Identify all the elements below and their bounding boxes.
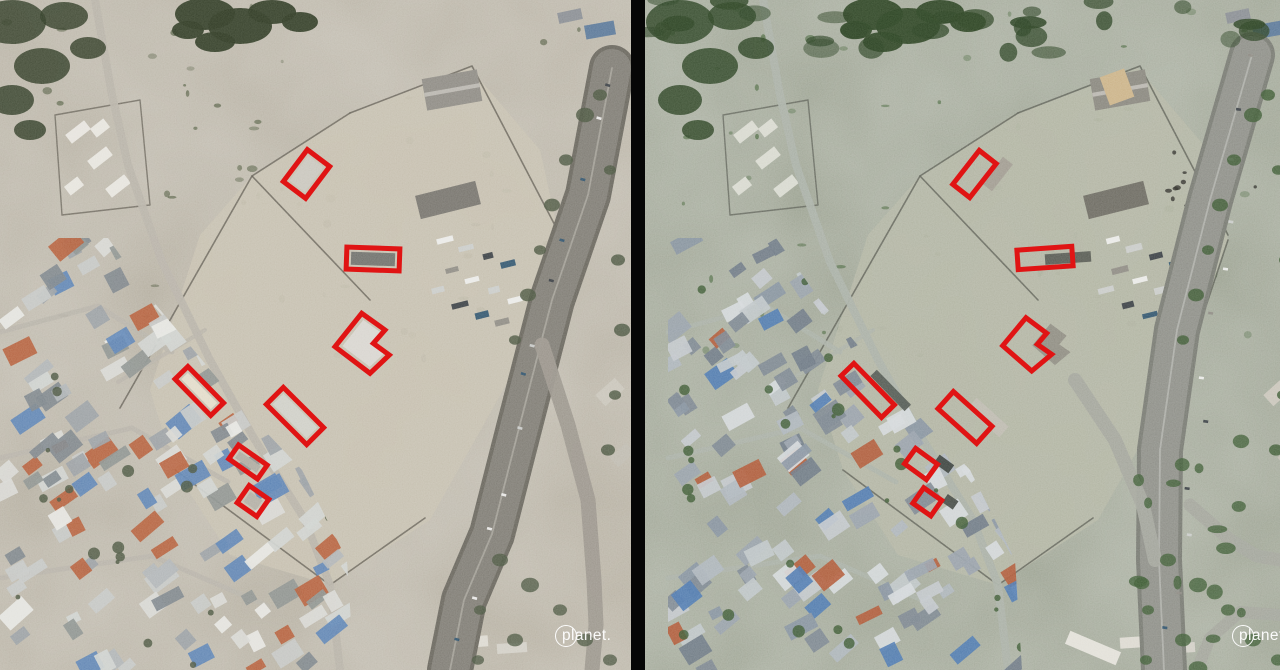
panel-divider <box>631 0 645 670</box>
satellite-panel-before: planet. <box>0 0 631 670</box>
annotation-box <box>229 445 267 479</box>
satellite-panel-after: planet. <box>645 0 1280 670</box>
annotation-overlay-before <box>0 0 631 670</box>
annotation-box <box>266 387 323 444</box>
annotation-box <box>346 247 400 271</box>
annotation-box <box>953 150 996 197</box>
annotation-box <box>283 150 329 199</box>
annotation-box <box>913 488 942 516</box>
annotation-box <box>1003 318 1052 371</box>
annotation-overlay-after <box>645 0 1280 670</box>
annotation-box <box>841 363 894 417</box>
planet-logo-text: planet. <box>1239 627 1280 645</box>
annotation-box <box>335 313 389 373</box>
annotation-box <box>1017 246 1073 269</box>
planet-logo-text: planet. <box>562 627 611 645</box>
annotation-box <box>904 448 937 479</box>
satellite-comparison-view: planet. planet. <box>0 0 1280 670</box>
planet-logo: planet. <box>1232 624 1280 654</box>
annotation-box <box>938 392 992 444</box>
annotation-box <box>175 366 224 415</box>
annotation-box <box>237 486 269 517</box>
planet-logo: planet. <box>555 624 631 654</box>
